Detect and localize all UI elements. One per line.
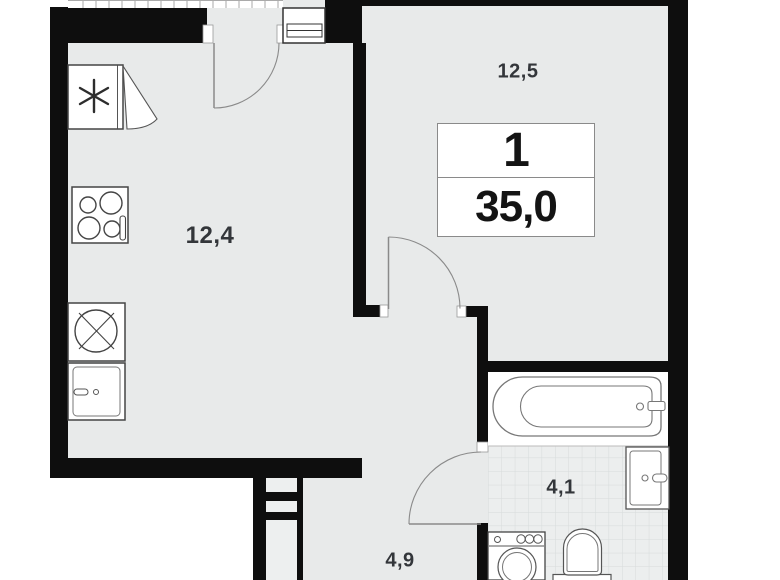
room-door-swing bbox=[389, 237, 461, 309]
fridge-icon bbox=[68, 65, 157, 129]
washbasin-icon bbox=[626, 447, 669, 509]
wall-shaft-left bbox=[253, 478, 266, 580]
balcony-door-swing bbox=[214, 43, 279, 108]
balcony-window-unit bbox=[283, 8, 325, 43]
shaft-divider-2 bbox=[266, 512, 297, 520]
washing-machine-icon bbox=[488, 532, 545, 580]
apartment-number: 1 bbox=[438, 124, 594, 178]
bathroom-door-swing bbox=[409, 452, 481, 524]
balcony-edge-hatch bbox=[50, 0, 283, 8]
wall-shaft-right bbox=[297, 478, 303, 580]
bathroom-area-label: 4,1 bbox=[546, 477, 575, 500]
wall-bathroom-top bbox=[477, 361, 668, 372]
kitchen-sink-icon bbox=[68, 303, 125, 361]
wall-kitchen-bottom bbox=[50, 458, 362, 478]
wall-room-top bbox=[362, 0, 688, 6]
wall-stub-left-of-room-door bbox=[353, 305, 380, 317]
wall-outer-right bbox=[668, 0, 688, 580]
apartment-total-area: 35,0 bbox=[438, 178, 594, 236]
kitchen-area-label: 12,4 bbox=[186, 222, 235, 250]
doors bbox=[214, 43, 481, 524]
apartment-info-box: 1 35,0 bbox=[437, 123, 595, 237]
shaft-divider-1 bbox=[266, 492, 297, 501]
hallway-area-label: 4,9 bbox=[385, 550, 414, 573]
bathtub-icon bbox=[488, 372, 668, 446]
wall-kitchen-top bbox=[50, 8, 207, 43]
plan-drawing bbox=[0, 0, 780, 580]
wall-hall-bath-lower bbox=[477, 523, 488, 580]
wall-kitchen-hall bbox=[353, 43, 366, 311]
wall-outer-left bbox=[50, 7, 68, 478]
room-area-label: 12,5 bbox=[498, 61, 539, 84]
kitchen-fixtures bbox=[68, 65, 157, 420]
wall-top-corner-block bbox=[325, 0, 362, 43]
floor-plan: 12,4 12,5 4,1 4,9 1 35,0 bbox=[0, 0, 780, 580]
stove-icon bbox=[72, 187, 128, 243]
kitchen-cabinet-icon bbox=[68, 363, 125, 420]
wall-hall-bath-upper bbox=[477, 306, 488, 442]
door-jambs bbox=[203, 25, 488, 452]
